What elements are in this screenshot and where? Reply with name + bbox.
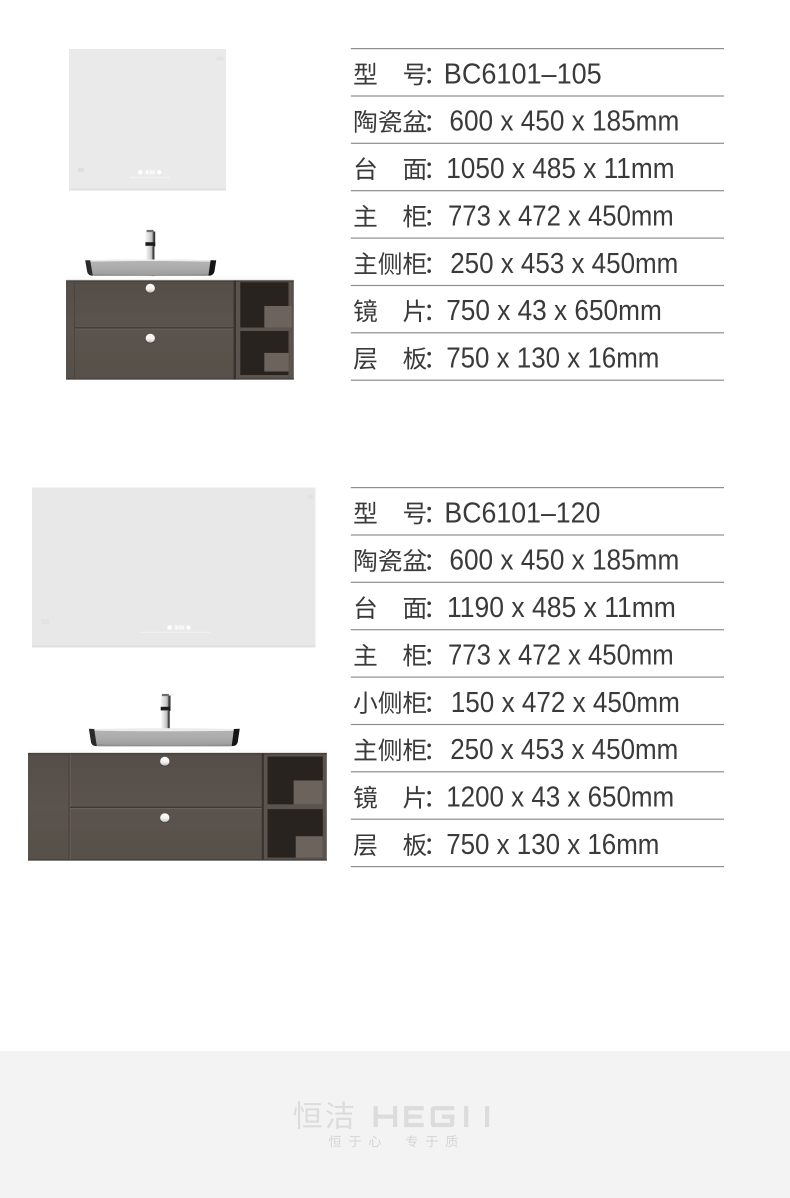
svg-text:1200 x 43 x 650mm: 1200 x 43 x 650mm [446,782,674,814]
svg-text:600 x 450 x 185mm: 600 x 450 x 185mm [449,545,679,577]
svg-text:750 x 130 x 16mm: 750 x 130 x 16mm [446,829,659,861]
svg-text:BC6101–105: BC6101–105 [444,58,602,90]
svg-text:1050 x 485 x 11mm: 1050 x 485 x 11mm [446,153,674,185]
svg-text:750 x 130 x 16mm: 750 x 130 x 16mm [446,343,659,375]
svg-text:250 x 453 x 450mm: 250 x 453 x 450mm [450,734,678,766]
svg-text:250 x 453 x 450mm: 250 x 453 x 450mm [450,248,678,280]
svg-text:773 x 472 x 450mm: 773 x 472 x 450mm [448,639,674,671]
svg-text:BC6101–120: BC6101–120 [444,497,600,529]
svg-text:750 x 43 x 650mm: 750 x 43 x 650mm [446,295,662,327]
svg-text:773 x 472 x 450mm: 773 x 472 x 450mm [448,200,674,232]
svg-text:1190 x 485 x 11mm: 1190 x 485 x 11mm [447,592,676,624]
svg-text:600 x 450 x 185mm: 600 x 450 x 185mm [449,106,679,138]
svg-text:150 x 472 x 450mm: 150 x 472 x 450mm [451,687,680,719]
